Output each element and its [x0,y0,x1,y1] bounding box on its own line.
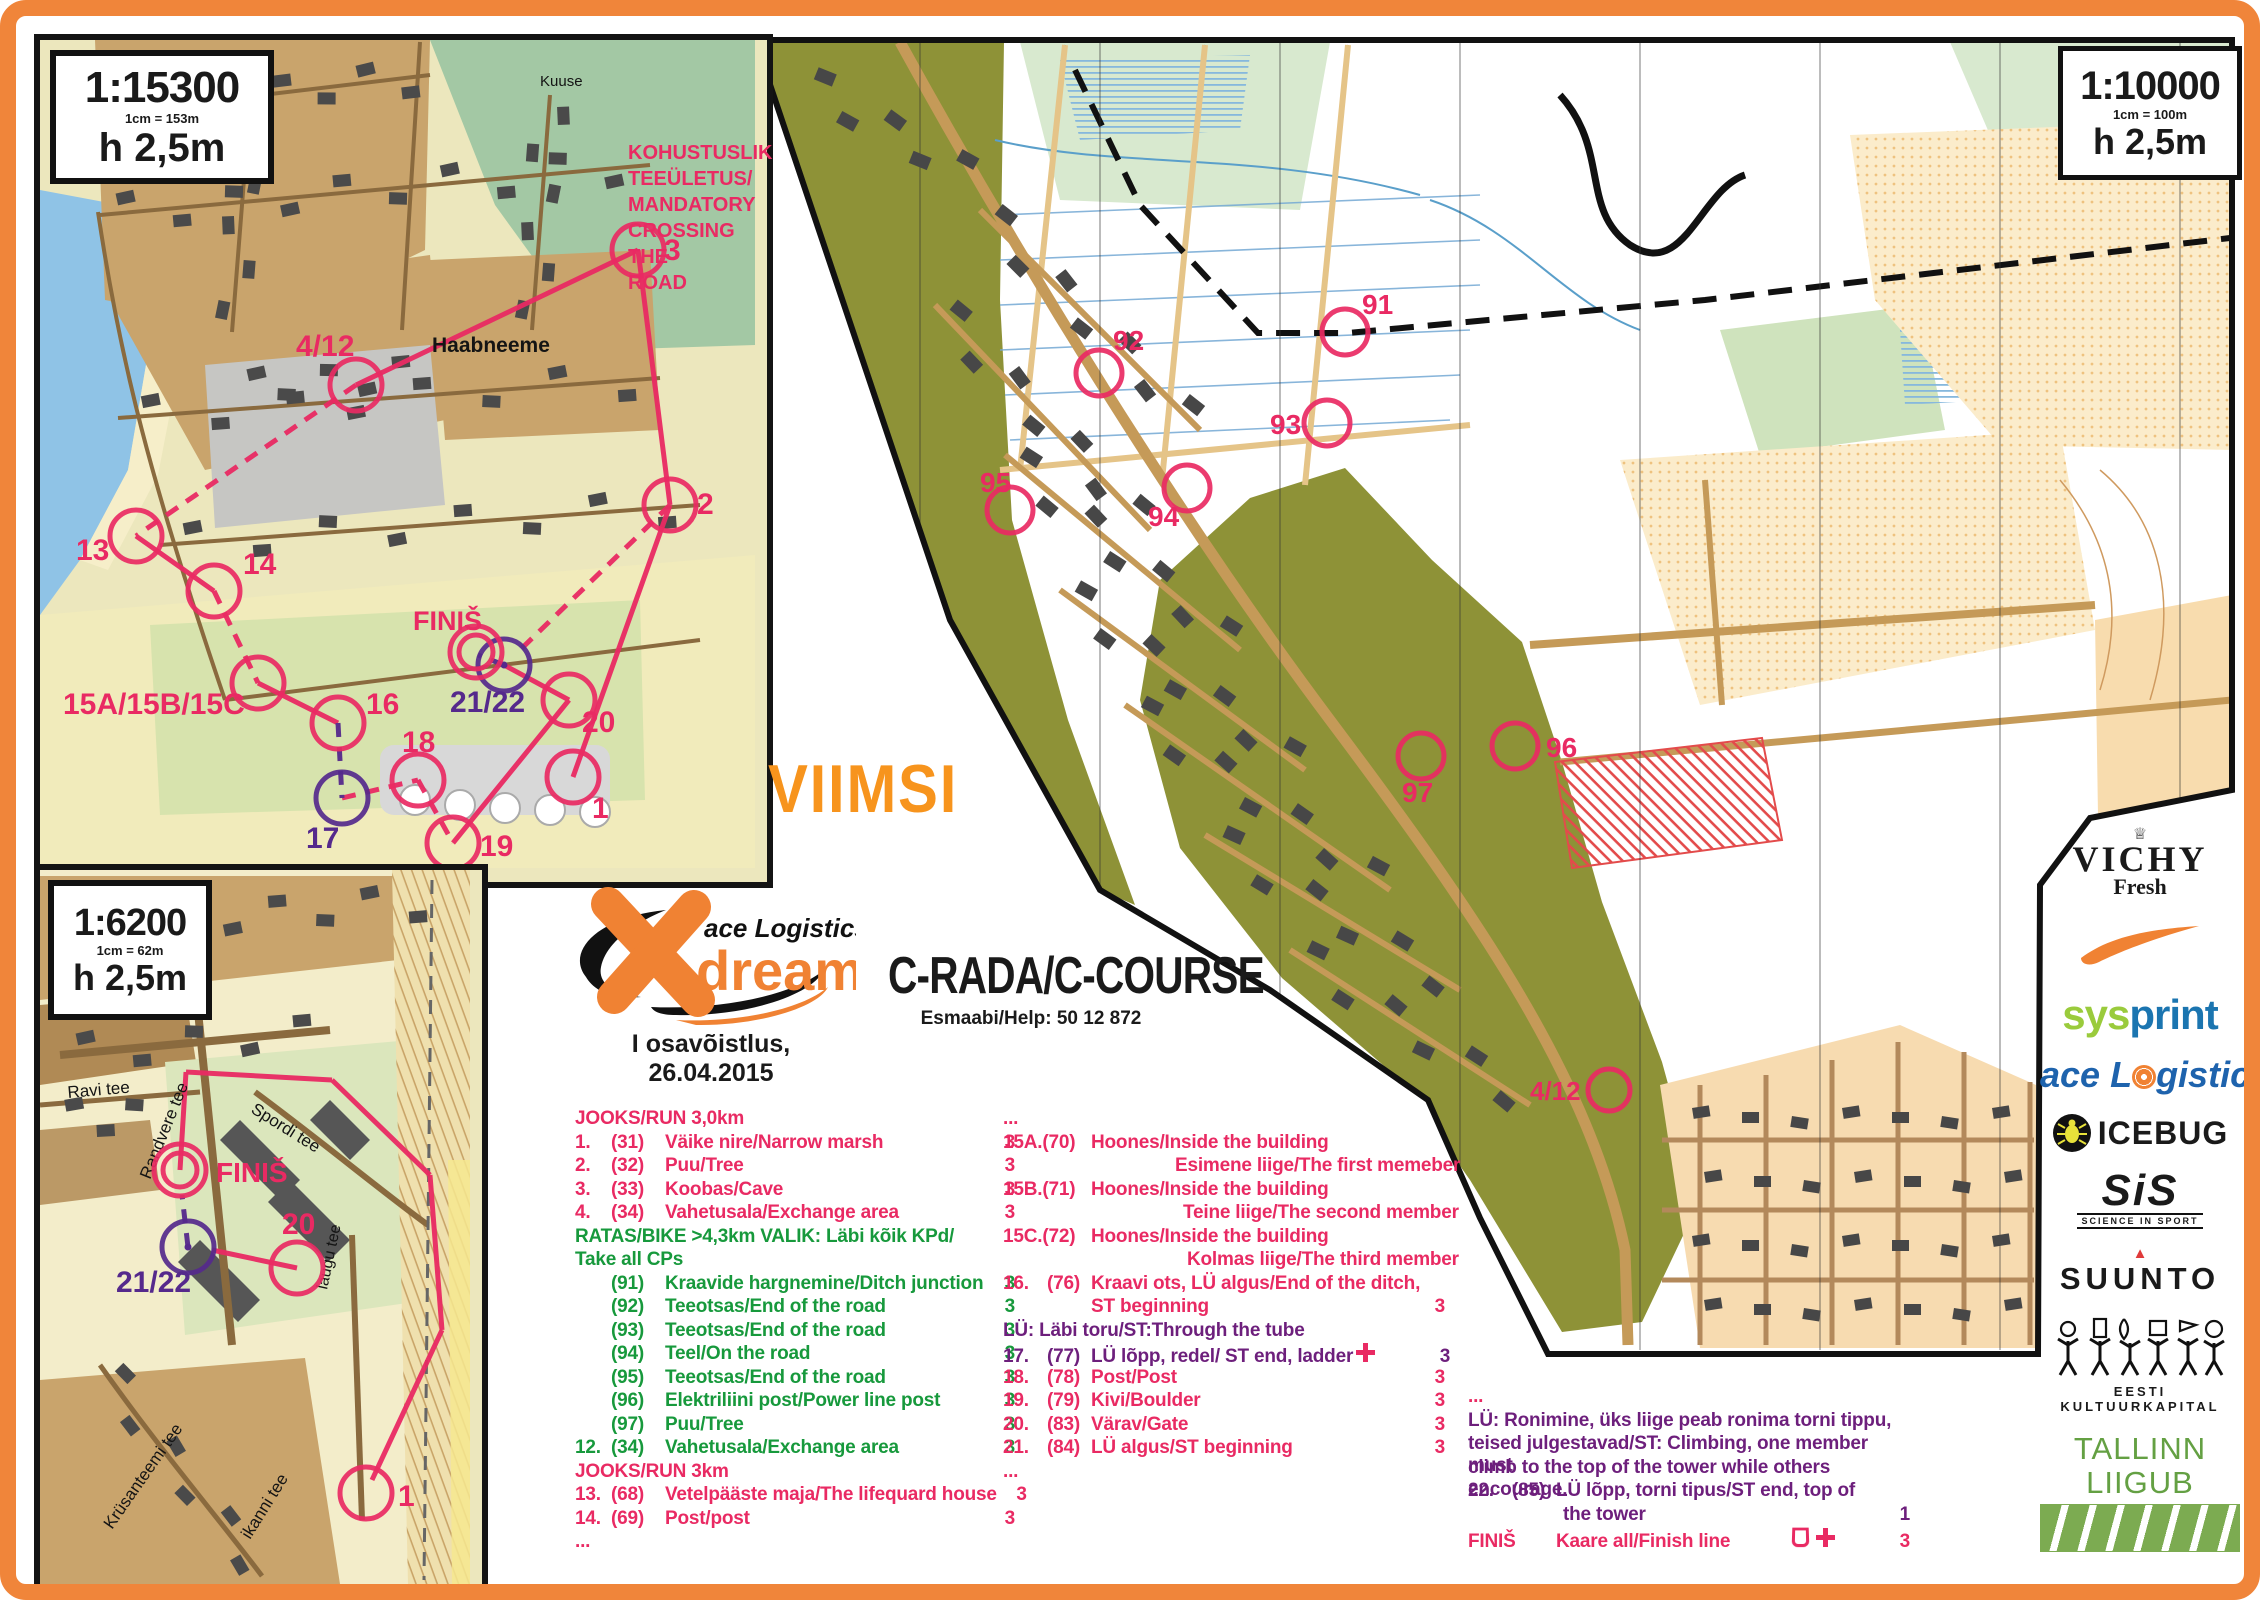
scale-equivalence: 1cm = 100m [2063,108,2237,121]
control-description: Teel/On the road [665,1343,985,1365]
control-points: 3 [1415,1296,1445,1318]
control-description: Esimene liige/The first memeber [1175,1155,1460,1177]
course-row: (93)Teeotsas/End of the road3 [575,1320,1015,1344]
course-row: 20.(83)Värav/Gate3 [1003,1414,1445,1438]
control-description: Post/Post [1091,1367,1415,1389]
control-description: Koobas/Cave [665,1179,985,1201]
vichy-logo: ♕ VICHY Fresh [2040,828,2240,898]
control-label: 1 [398,1480,415,1513]
control-code: (68) [611,1484,665,1506]
control-description: Kraavide hargnemine/Ditch junction [665,1273,985,1295]
nike-swoosh-icon [2075,924,2205,970]
control-description: Vahetusala/Exchange area [665,1437,985,1459]
course-row: 12.(34)Vahetusala/Exchange area3 [575,1437,1015,1461]
scale-value: 1:15300 [56,66,268,111]
control-description: ST beginning [1091,1296,1415,1318]
ace-part1: ace L [2040,1054,2132,1095]
contour-interval: h 2,5m [56,128,268,169]
control-label: 16 [366,688,399,721]
ace-logistics-logo: ace Lgistics [2040,1055,2240,1095]
course-row: Teine liige/The second member [1003,1202,1445,1226]
control-points: 3 [1415,1437,1445,1459]
course-row: 22.(85)LÜ lõpp, torni tipus/ST end, top … [1468,1480,1910,1504]
control-code: (83) [1047,1414,1091,1436]
control-description: Värav/Gate [1091,1414,1415,1436]
control-label: 13 [76,534,109,567]
course-header-row: ... [1003,1461,1445,1485]
control-points: 1 [1880,1504,1910,1526]
contour-interval: h 2,5m [2063,124,2237,161]
course-header-row: climb to the top of the tower while othe… [1468,1457,1910,1481]
control-description: Elektriliini post/Power line post [665,1390,985,1412]
tallinn-liigub-logo: TALLINN LIIGUB [2040,1432,2240,1552]
kultuurkapital-name: EESTI KULTUURKAPITAL [2040,1384,2240,1414]
icebug-bug-icon [2052,1113,2092,1153]
control-description: Teine liige/The second member [1183,1202,1459,1224]
course-header-row: RATAS/BIKE >4,3km VALIK: Läbi kõik KPd/ [575,1226,1015,1250]
course-list-left: JOOKS/RUN 3,0km1.(31)Väike nire/Narrow m… [575,1108,1015,1555]
course-row: 15B.(71)Hoones/Inside the building [1003,1179,1445,1203]
control-code: (91) [611,1273,665,1295]
course-row: 21.(84)LÜ algus/ST beginning3 [1003,1437,1445,1461]
suunto-name: SUUNTO [2040,1261,2240,1297]
scale-value: 1:6200 [54,904,206,943]
control-description: Vahetusala/Exchange area [665,1202,985,1224]
control-description: LÜ lõpp, redel/ ST end, ladder [1091,1346,1353,1368]
drink-station-icon [1792,1528,1810,1547]
course-header-row: LÜ: Läbi toru/ST:Through the tube [1003,1320,1445,1344]
control-description: Post/post [665,1508,985,1530]
control-code: (93) [611,1320,665,1342]
sysprint-part1: sys [2062,991,2129,1038]
control-number: 21. [1003,1437,1047,1459]
course-row: 14.(69)Post/post3 [575,1508,1015,1532]
sysprint-part2: print [2129,991,2217,1038]
orienteering-map-poster: 919293949596974/12 [0,0,2260,1600]
control-number: 18. [1003,1367,1047,1389]
map-label: Haabneeme [432,334,550,357]
control-number: 1. [575,1132,611,1154]
control-description: Kivi/Boulder [1091,1390,1415,1412]
control-code: (97) [611,1414,665,1436]
suunto-logo: ▲ SUUNTO [2040,1247,2240,1297]
control-label: 17 [306,822,339,855]
control-points: 3 [1415,1390,1445,1412]
help-line: Esmaabi/Help: 50 12 872 [866,1008,1196,1030]
nike-logo [2040,924,2240,975]
contour-interval: h 2,5m [54,960,206,997]
control-number: 16. [1003,1273,1047,1295]
control-code: (95) [611,1367,665,1389]
scale-box-inset-top: 1:15300 1cm = 153m h 2,5m [50,50,274,184]
suunto-triangle-icon: ▲ [2040,1247,2240,1261]
control-number: 14. [575,1508,611,1530]
control-code: (34) [611,1202,665,1224]
control-points: 3 [1880,1531,1910,1553]
control-code: (94) [611,1343,665,1365]
xdream-logo: ace Logistics dream [556,882,856,1037]
tallinn-liigub-name: TALLINN LIIGUB [2040,1432,2240,1500]
control-label: 4/12 [296,330,354,363]
control-code: (31) [611,1132,665,1154]
mandatory-crossing-line: ROAD [628,270,768,296]
sysprint-logo: sysprint [2040,993,2240,1037]
scale-equivalence: 1cm = 62m [54,944,206,957]
course-row: 1.(31)Väike nire/Narrow marsh3 [575,1132,1015,1156]
control-description: Hoones/Inside the building [1091,1179,1415,1201]
course-row: ST beginning3 [1003,1296,1445,1320]
control-code: (69) [611,1508,665,1530]
control-number: 17. [1003,1346,1047,1368]
control-label: 95 [980,467,1011,498]
scale-value: 1:10000 [2063,66,2237,107]
course-row: 15A.(70)Hoones/Inside the building [1003,1132,1445,1156]
course-row: 13.(68)Vetelpääste maja/The lifequard ho… [575,1484,1015,1508]
course-header-row: JOOKS/RUN 3,0km [575,1108,1015,1132]
course-row: 3.(33)Koobas/Cave3 [575,1179,1015,1203]
control-code: (78) [1047,1367,1091,1389]
course-row: 19.(79)Kivi/Boulder3 [1003,1390,1445,1414]
control-label: 94 [1148,501,1180,532]
control-number: 19. [1003,1390,1047,1412]
control-label: FINIŠ [413,605,482,636]
control-number: 15A.(70) [1003,1132,1091,1154]
mandatory-crossing-line: KOHUSTUSLIK [628,140,768,166]
control-label: 21/22 [450,686,525,719]
vichy-name: VICHY [2040,842,2240,876]
control-number: FINIŠ [1468,1531,1556,1553]
course-row: (94)Teel/On the road3 [575,1343,1015,1367]
page-title: VIIMSI [768,750,958,828]
course-row: (97)Puu/Tree3 [575,1414,1015,1438]
control-number: 13. [575,1484,611,1506]
control-label: 19 [480,830,513,863]
mandatory-crossing-line: TEEÜLETUS/ [628,166,768,192]
scale-box-main: 1:10000 1cm = 100m h 2,5m [2058,46,2242,180]
sis-logo: SiS SCIENCE IN SPORT [2040,1171,2240,1229]
control-code: (92) [611,1296,665,1318]
tallinn-liigub-runners-icon [2040,1504,2240,1552]
icebug-logo: ICEBUG [2040,1113,2240,1153]
event-caption: I osavõistlus, 26.04.2015 [566,1030,856,1088]
control-description: Väike nire/Narrow marsh [665,1132,985,1154]
mandatory-crossing-note: KOHUSTUSLIKTEEÜLETUS/MANDATORYCROSSING T… [628,140,768,296]
mandatory-crossing-line: MANDATORY [628,192,768,218]
control-description: LÜ algus/ST beginning [1091,1437,1415,1459]
control-description: Kaare all/Finish line [1556,1531,1788,1553]
course-row: 16.(76)Kraavi ots, LÜ algus/End of the d… [1003,1273,1445,1297]
sis-tagline: SCIENCE IN SPORT [2077,1213,2202,1229]
sis-name: SiS [2040,1171,2240,1211]
control-label: FINIŠ [216,1156,288,1188]
control-number: 4. [575,1202,611,1224]
control-label: 15A/15B/15C [63,688,245,721]
course-row: Esimene liige/The first memeber [1003,1155,1445,1179]
course-header-row: Take all CPs [575,1249,1015,1273]
control-description: Puu/Tree [665,1414,985,1436]
control-label: 21/22 [116,1266,191,1299]
control-label: 92 [1113,325,1144,356]
control-number: 3. [575,1179,611,1201]
mandatory-crossing-line: CROSSING THE [628,218,768,270]
control-description: Kolmas liige/The third member [1187,1249,1459,1271]
course-row: (96)Elektriliini post/Power line post3 [575,1390,1015,1414]
control-label: 20 [282,1208,315,1241]
control-code: (33) [611,1179,665,1201]
control-number: 12. [575,1437,611,1459]
control-label: 4/12 [1530,1076,1581,1106]
control-label: 20 [582,706,615,739]
course-row: the tower1 [1468,1504,1910,1528]
logo-product: dream [696,939,856,1002]
control-description: Vetelpääste maja/The lifequard house [665,1484,997,1506]
control-description: Hoones/Inside the building [1091,1132,1415,1154]
course-row: (95)Teeotsas/End of the road3 [575,1367,1015,1391]
control-number: 22. [1468,1480,1512,1502]
first-aid-cross-icon [1816,1528,1835,1547]
control-label: 14 [243,548,277,581]
course-header-row: ... [1003,1108,1445,1132]
course-row: 17.(77)LÜ lõpp, redel/ ST end, ladder3 [1003,1343,1445,1367]
control-code: (85) [1512,1480,1556,1502]
control-code: (96) [611,1390,665,1412]
control-number: 15C.(72) [1003,1226,1091,1248]
course-title-block: C-RADA/C-COURSE Esmaabi/Help: 50 12 872 [888,946,1218,1030]
course-row: 4.(34)Vahetusala/Exchange area3 [575,1202,1015,1226]
course-header-row: ... [575,1531,1015,1555]
control-number: 2. [575,1155,611,1177]
control-points: 3 [997,1484,1027,1506]
control-label: 91 [1362,289,1393,320]
scale-box-inset-bottom: 1:6200 1cm = 62m h 2,5m [48,880,212,1020]
course-row: FINIŠKaare all/Finish line3 [1468,1527,1910,1551]
control-description: the tower [1563,1504,1880,1526]
course-row: 2.(32)Puu/Tree3 [575,1155,1015,1179]
control-code: (79) [1047,1390,1091,1412]
control-description: Hoones/Inside the building [1091,1226,1415,1248]
map-label: Kuuse [540,73,583,90]
control-code: (32) [611,1155,665,1177]
kultuurkapital-figures-icon [2052,1315,2228,1377]
control-number: 15B.(71) [1003,1179,1091,1201]
course-header-row: JOOKS/RUN 3km [575,1461,1015,1485]
course-list-notes: ...LÜ: Ronimine, üks liige peab ronima t… [1468,1386,1910,1551]
control-number: 20. [1003,1414,1047,1436]
control-label: 97 [1402,777,1433,808]
course-row: (91)Kraavide hargnemine/Ditch junction3 [575,1273,1015,1297]
control-label: 2 [697,488,714,521]
control-label: 93 [1270,409,1301,440]
control-description: Teeotsas/End of the road [665,1296,985,1318]
ace-swirl-icon [2132,1065,2156,1089]
ace-part2: gistics [2156,1054,2260,1095]
control-description: Kraavi ots, LÜ algus/End of the ditch, [1091,1273,1420,1295]
control-points: 3 [985,1508,1015,1530]
course-row: 15C.(72)Hoones/Inside the building [1003,1226,1445,1250]
control-description: Teeotsas/End of the road [665,1367,985,1389]
sponsor-column: ♕ VICHY Fresh sysprint ace Lgistics [2040,828,2240,1570]
control-code: (76) [1047,1273,1091,1295]
icebug-name: ICEBUG [2098,1115,2228,1152]
control-code: (77) [1047,1346,1091,1368]
control-points: 3 [1415,1414,1445,1436]
control-label: 18 [402,726,435,759]
course-row: (92)Teeotsas/End of the road3 [575,1296,1015,1320]
control-description: LÜ lõpp, torni tipus/ST end, top of [1556,1480,1880,1502]
course-row: Kolmas liige/The third member [1003,1249,1445,1273]
control-points: 3 [1415,1367,1445,1389]
scale-equivalence: 1cm = 153m [56,112,268,125]
course-list-right: ...15A.(70)Hoones/Inside the buildingEsi… [1003,1108,1445,1484]
control-code: (34) [611,1437,665,1459]
control-code: (84) [1047,1437,1091,1459]
course-header-row: LÜ: Ronimine, üks liige peab ronima torn… [1468,1410,1910,1434]
course-title: C-RADA/C-COURSE [888,946,1145,1006]
control-label: 96 [1546,732,1577,763]
control-points: 3 [1420,1346,1450,1368]
course-header-row: teised julgestavad/ST: Climbing, one mem… [1468,1433,1910,1457]
control-description: Puu/Tree [665,1155,985,1177]
kultuurkapital-logo: EESTI KULTUURKAPITAL [2040,1315,2240,1414]
course-header-row: ... [1468,1386,1910,1410]
vichy-tagline: Fresh [2040,876,2240,898]
first-aid-cross-icon [1356,1343,1375,1362]
control-description: Teeotsas/End of the road [665,1320,985,1342]
course-row: 18.(78)Post/Post3 [1003,1367,1445,1391]
control-label: 1 [592,792,609,825]
